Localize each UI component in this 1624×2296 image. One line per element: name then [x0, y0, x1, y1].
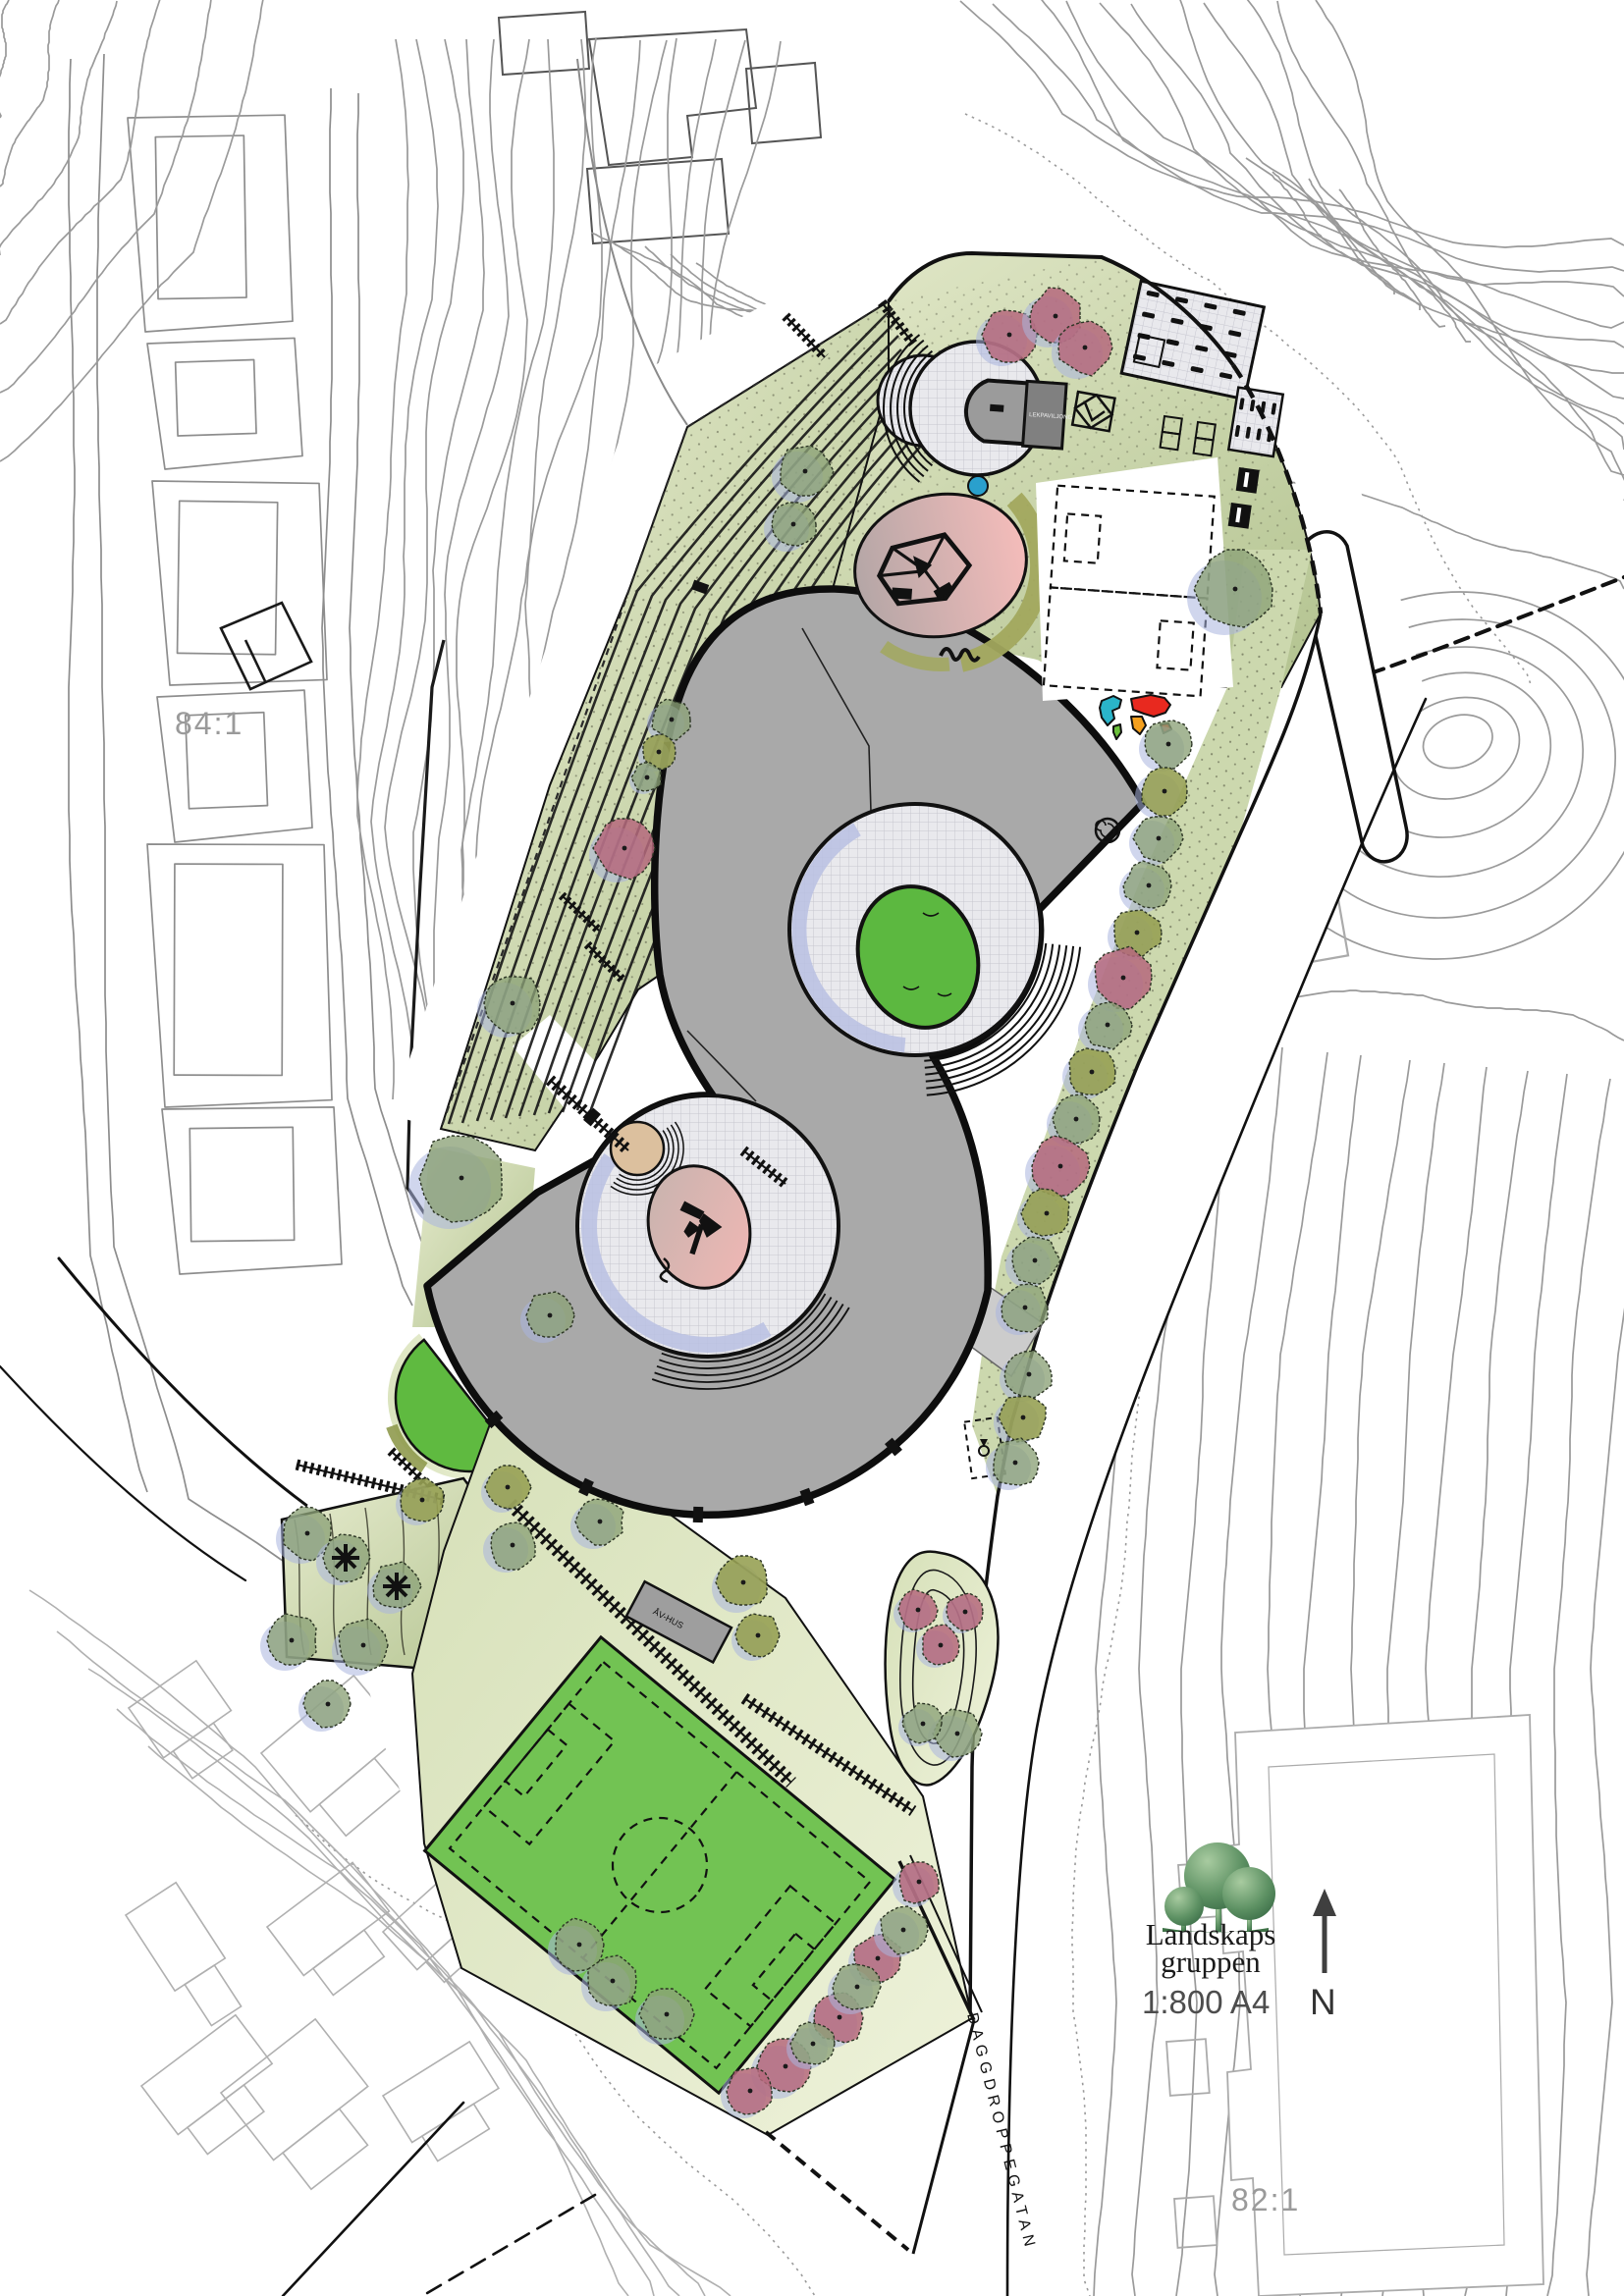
svg-text:gruppen: gruppen	[1161, 1945, 1261, 1979]
svg-text:84:1: 84:1	[175, 706, 244, 741]
svg-text:82:1: 82:1	[1231, 2182, 1300, 2217]
svg-text:N: N	[1310, 1982, 1336, 2022]
svg-text:1:800 A4: 1:800 A4	[1142, 1984, 1270, 2020]
